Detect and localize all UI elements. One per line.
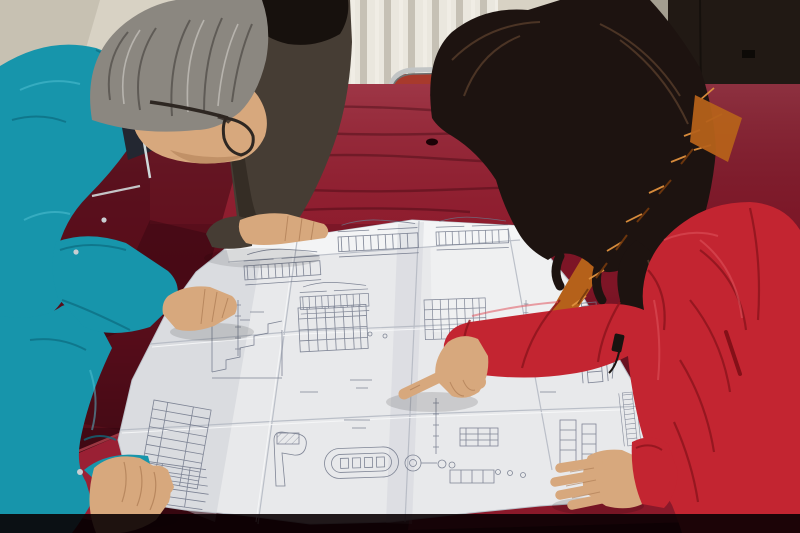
velvet-nick (426, 139, 438, 146)
photo-scene (0, 0, 800, 533)
door-latch (742, 50, 755, 58)
blueprint-review-photo (0, 0, 800, 533)
bottom-shadow (0, 514, 800, 533)
